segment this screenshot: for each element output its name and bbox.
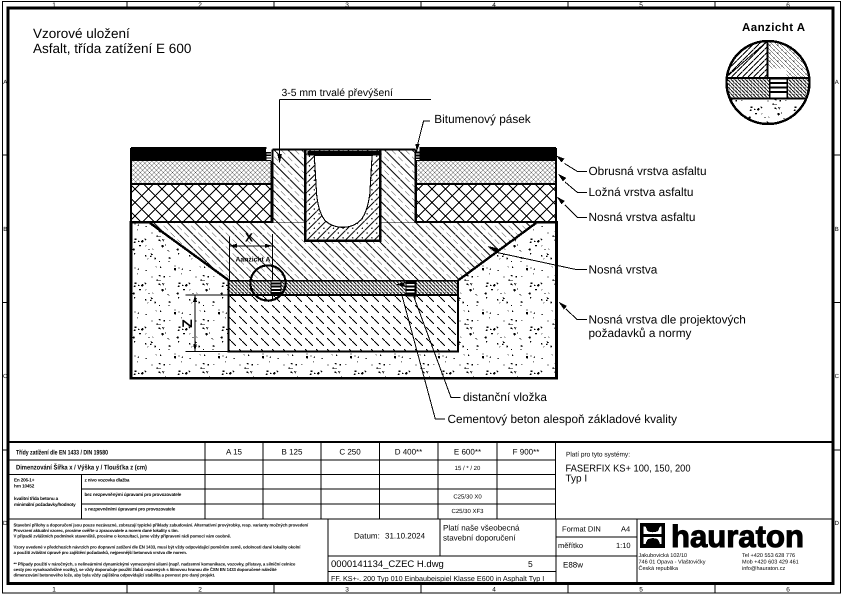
svg-text:Bitumenový pásek: Bitumenový pásek <box>434 112 530 126</box>
svg-text:6: 6 <box>786 587 790 594</box>
svg-text:Nosná vrstva: Nosná vrstva <box>589 263 658 277</box>
svg-text:Česká republika: Česká republika <box>639 565 679 572</box>
svg-text:Obrusná vrstva asfaltu: Obrusná vrstva asfaltu <box>589 164 707 178</box>
svg-text:Jakubovická 102/10: Jakubovická 102/10 <box>639 552 688 559</box>
svg-text:C25/30 XF3: C25/30 XF3 <box>451 508 484 515</box>
svg-text:C: C <box>3 373 8 380</box>
svg-text:5: 5 <box>639 2 643 9</box>
svg-text:Třídy zatížení dle EN 1433 / D: Třídy zatížení dle EN 1433 / DIN 19580 <box>16 450 108 457</box>
svg-text:Vzorové uložení: Vzorové uložení <box>33 26 130 41</box>
svg-text:A: A <box>3 79 7 86</box>
svg-text:F 900**: F 900** <box>513 448 540 457</box>
svg-text:2: 2 <box>198 2 202 9</box>
svg-text:En 206-1+: En 206-1+ <box>14 478 35 483</box>
svg-text:X: X <box>245 231 253 245</box>
svg-text:3: 3 <box>345 587 349 594</box>
svg-text:a použití zvláštní úpravě pro: a použití zvláštní úpravě pro zajištění … <box>14 550 187 555</box>
svg-text:Asfalt, třída zatížení E 600: Asfalt, třída zatížení E 600 <box>33 41 191 56</box>
svg-text:bez nezpevněnými úpravami pro: bez nezpevněnými úpravami pro provozovat… <box>85 492 182 497</box>
svg-text:info@hauraton.cz: info@hauraton.cz <box>742 566 785 572</box>
svg-text:D: D <box>835 520 840 527</box>
svg-text:1:10: 1:10 <box>616 541 631 550</box>
svg-text:A4: A4 <box>621 525 630 534</box>
svg-text:V případě zvláštních podmínek: V případě zvláštních podmínek staveniště… <box>14 534 231 539</box>
svg-text:Datum:: Datum: <box>354 532 380 541</box>
svg-text:D 400**: D 400** <box>395 448 423 457</box>
svg-text:B: B <box>3 226 7 233</box>
svg-text:31.10.2024: 31.10.2024 <box>385 532 426 541</box>
svg-text:D: D <box>3 520 8 527</box>
svg-text:C25/30 X0: C25/30 X0 <box>453 494 482 501</box>
svg-text:Aanzicht A: Aanzicht A <box>742 22 805 34</box>
svg-text:5: 5 <box>639 587 643 594</box>
svg-text:4: 4 <box>492 587 496 594</box>
svg-text:746 01 Opava - Vlaštovičky: 746 01 Opava - Vlaštovičky <box>639 560 706 566</box>
svg-text:minimální požadavky/hodnoty: minimální požadavky/hodnoty <box>14 502 76 507</box>
svg-text:z nivo vozovka dlažba: z nivo vozovka dlažba <box>85 478 130 483</box>
svg-text:5: 5 <box>528 559 533 569</box>
svg-text:2: 2 <box>198 587 202 594</box>
svg-text:3: 3 <box>345 2 349 9</box>
svg-text:hauraton: hauraton <box>671 519 804 554</box>
svg-text:E 600**: E 600** <box>454 448 481 457</box>
svg-text:A 15: A 15 <box>226 448 243 457</box>
svg-text:Vzory uvedené v předchozích ná: Vzory uvedené v předchozích návrzích pro… <box>14 545 302 550</box>
svg-text:4: 4 <box>492 2 496 9</box>
svg-text:FF. KS+-. 200 Typ 010 Einbaub: FF. KS+-. 200 Typ 010 Einbaubeispiel Kla… <box>331 574 544 583</box>
svg-text:měřítko: měřítko <box>558 541 583 550</box>
svg-text:Stavební přílohy a doporučení: Stavební přílohy a doporučení jsou pouze… <box>14 523 310 528</box>
svg-text:15 / * / 20: 15 / * / 20 <box>455 465 481 472</box>
svg-text:Mob +420 603 429 461: Mob +420 603 429 461 <box>742 560 799 566</box>
svg-text:stavební doporučení: stavební doporučení <box>443 534 516 543</box>
svg-text:Ložná vrstva asfaltu: Ložná vrstva asfaltu <box>589 185 694 199</box>
svg-text:6: 6 <box>786 2 790 9</box>
svg-text:Provrzení aktuální vzorec, pro: Provrzení aktuální vzorec, prosíme ověřt… <box>14 528 179 533</box>
svg-text:požadavků a normy: požadavků a normy <box>589 326 692 340</box>
svg-text:C: C <box>835 373 840 380</box>
svg-text:C 250: C 250 <box>339 448 361 457</box>
svg-text:A: A <box>835 79 839 86</box>
svg-text:3-5 mm trvalé převýšení: 3-5 mm trvalé převýšení <box>282 88 394 99</box>
svg-text:** Případy použití v náročných: ** Případy použití v náročných, s neline… <box>14 562 296 567</box>
svg-text:Platí pro tyto systémy:: Platí pro tyto systémy: <box>566 452 630 459</box>
svg-text:dimenzování betonového lože, a: dimenzování betonového lože, aby byla vž… <box>14 573 216 578</box>
svg-text:Typ I: Typ I <box>566 474 588 485</box>
svg-text:Z: Z <box>179 319 195 328</box>
svg-text:Tel +420 553 628 776: Tel +420 553 628 776 <box>742 553 795 559</box>
svg-text:Platí naše všeobecná: Platí naše všeobecná <box>443 524 520 533</box>
svg-text:Cementový beton alespoň základ: Cementový beton alespoň základové kvalit… <box>448 412 678 426</box>
svg-text:B: B <box>835 226 839 233</box>
svg-text:0000141134_CZEC H.dwg: 0000141134_CZEC H.dwg <box>331 559 444 570</box>
svg-text:Format DIN: Format DIN <box>562 525 601 534</box>
svg-text:B 125: B 125 <box>282 448 303 457</box>
svg-text:Nosná vrstva asfaltu: Nosná vrstva asfaltu <box>589 210 696 224</box>
svg-text:kvalitní třída betonu a: kvalitní třída betonu a <box>14 496 59 501</box>
svg-text:Aanzicht A: Aanzicht A <box>236 257 271 264</box>
svg-text:Dimenzování Šířka x / Výška: Dimenzování Šířka x / Výška y / Tloušťka… <box>16 463 147 472</box>
svg-text:distanční vložka: distanční vložka <box>463 390 547 404</box>
svg-text:s nezpevněními úpravami pro pr: s nezpevněními úpravami pro provozovatel… <box>85 507 176 512</box>
svg-text:hrn 10452: hrn 10452 <box>14 484 35 489</box>
svg-text:1: 1 <box>52 2 56 9</box>
svg-text:1: 1 <box>52 587 56 594</box>
svg-text:cesty pro vysokozdvižné vozíky: cesty pro vysokozdvižné vozíky), se vždy… <box>14 567 278 572</box>
svg-text:Nosná vrstva dle projektových: Nosná vrstva dle projektových <box>589 313 746 327</box>
svg-text:E88w: E88w <box>563 561 583 570</box>
